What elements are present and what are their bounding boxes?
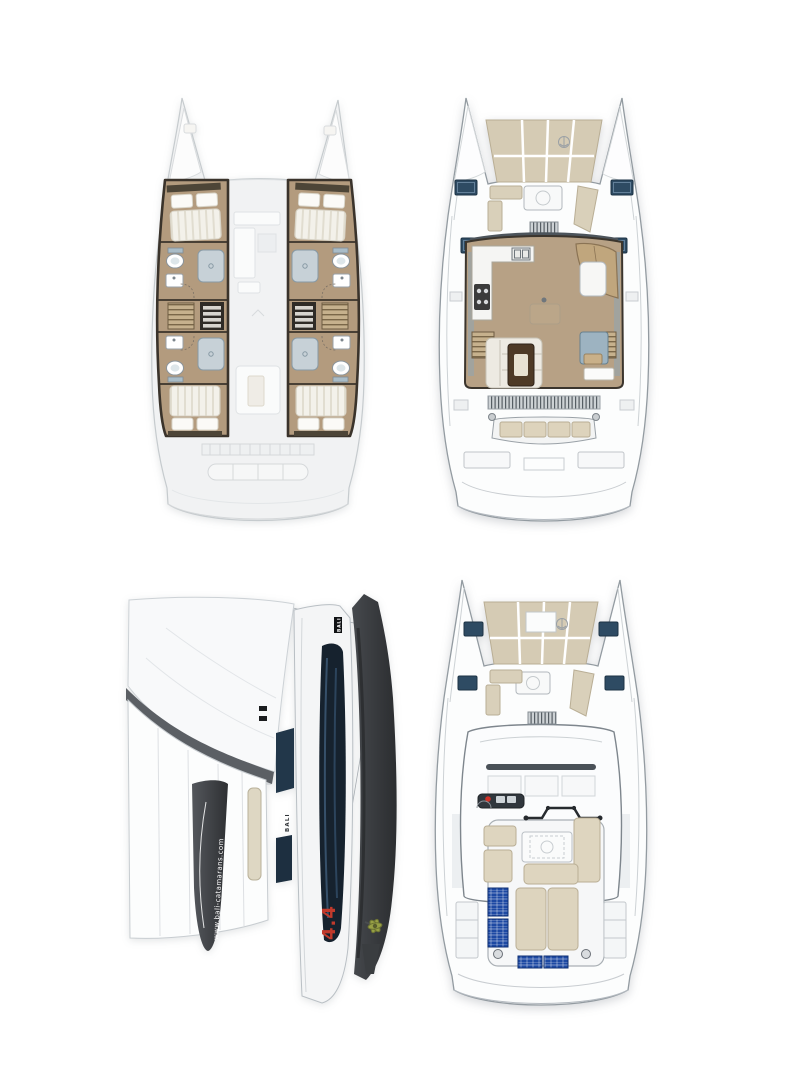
- round-hatch: [582, 950, 591, 959]
- saloon: [465, 236, 623, 388]
- foredeck-sunpads: [484, 602, 598, 664]
- lower-deck-plan-image: [138, 84, 378, 536]
- aft-cockpit: [488, 396, 600, 444]
- helm-console: [477, 794, 524, 808]
- aft-bench-cushions: [500, 422, 590, 437]
- bench-cushion: [486, 685, 500, 715]
- flybridge-table: [522, 832, 572, 862]
- flybridge-plan-image: [422, 566, 660, 1014]
- hull-window-band: [319, 644, 346, 943]
- winch-icon: [489, 414, 496, 421]
- solar-panel: [488, 919, 508, 947]
- side-profile-svg: www.bali-catamarans.com BALI BALI 4.4: [126, 588, 408, 1012]
- side-profile-image: www.bali-catamarans.com BALI BALI 4.4: [126, 588, 408, 1012]
- sink-icon: [166, 336, 183, 349]
- bench-cushion: [488, 201, 502, 231]
- cockpit-table: [524, 186, 562, 210]
- shower-icon: [198, 250, 224, 282]
- companionway-steps: [200, 302, 224, 330]
- deck-hatch: [458, 676, 477, 690]
- dining-table: [580, 262, 606, 296]
- sunpad: [548, 888, 578, 950]
- shower-icon: [198, 338, 224, 370]
- side-seat: [484, 850, 512, 882]
- lower-deck-plan-svg: [138, 84, 378, 536]
- flybridge: [477, 794, 604, 968]
- sink-icon: [166, 274, 183, 287]
- sunpad: [516, 888, 546, 950]
- helm-seat: [484, 826, 516, 846]
- brochure-page: www.bali-catamarans.com BALI BALI 4.4: [0, 0, 810, 1080]
- bow-chip-text: BALI: [337, 618, 343, 632]
- vent-grille: [488, 396, 600, 409]
- solar-panel: [518, 956, 542, 968]
- flybridge-plan-svg: [422, 566, 660, 1014]
- bow-berths-ghost: [169, 108, 350, 184]
- solar-panel: [488, 888, 508, 916]
- deck-hatch: [464, 622, 483, 636]
- dining-area: [576, 243, 618, 298]
- deck-hatch: [599, 622, 618, 636]
- deck-hatch: [605, 676, 624, 690]
- bench-cushion: [490, 670, 522, 683]
- near-hull-topsides: BALI BALI 4.4: [285, 605, 353, 1003]
- foredeck-sunpads: [486, 120, 602, 182]
- mast-foot: [542, 298, 547, 303]
- wardrobe: [168, 303, 194, 329]
- floor-grate: [528, 712, 556, 724]
- windshield-bar: [486, 764, 596, 770]
- stove-icon: [474, 284, 490, 310]
- hull-brand-text: BALI: [285, 813, 291, 832]
- u-bench-aft: [524, 864, 578, 884]
- main-deck-plan-image: [428, 86, 660, 530]
- round-hatch: [494, 950, 503, 959]
- starboard-hull-interior: [288, 180, 359, 436]
- model-number-text: 4.4: [319, 905, 340, 940]
- solar-panel: [544, 956, 568, 968]
- main-deck-plan-svg: [428, 86, 660, 530]
- bench-cushion: [490, 186, 522, 199]
- winch-icon: [593, 414, 600, 421]
- port-hull-interior: [157, 180, 228, 436]
- liferaft-canister: [248, 788, 261, 880]
- sofa: [486, 338, 542, 388]
